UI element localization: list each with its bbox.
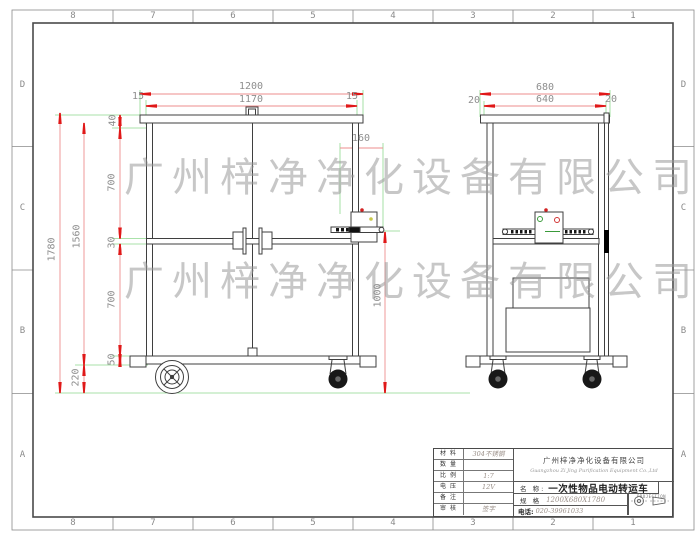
dim-front-total-width: 1200 <box>231 81 271 92</box>
grid-col-bot-2: 2 <box>541 517 565 530</box>
scale-value: 1:7 <box>464 471 513 481</box>
grid-row-left-b: B <box>12 324 33 338</box>
title-block: 材 料 304不锈钢 数 量 比 例 1:7 电 压 12V 备 注 审 核 签 <box>433 448 673 517</box>
product-name-value: 一次性物品电动转运车 <box>548 481 648 495</box>
grid-row-right-c: C <box>673 201 694 215</box>
dim-front-inner-width: 1170 <box>231 94 271 105</box>
company-name-en: Guangzhou Zi Jing Purification Equipment… <box>514 468 674 474</box>
grid-row-right-d: D <box>673 78 694 92</box>
grid-col-bot-6: 6 <box>221 517 245 530</box>
phone-row: 电话: 020-39961033 <box>514 506 628 515</box>
spec-label: 规 格 <box>520 495 541 505</box>
scale-label: 比 例 <box>434 471 464 481</box>
projection-cell: PROJECTION <box>628 494 674 515</box>
grid-col-bot-5: 5 <box>301 517 325 530</box>
company-block: 广州梓净净化设备有限公司 Guangzhou Zi Jing Purificat… <box>514 449 674 482</box>
dim-side-margin-left: 20 <box>462 95 486 106</box>
front-control-box <box>331 208 384 242</box>
grid-col-top-2: 2 <box>541 10 565 23</box>
watermark-line-1: 广州梓净净化设备有限公司 <box>124 156 644 200</box>
voltage-value: 12V <box>464 482 513 492</box>
quantity-label: 数 量 <box>434 460 464 470</box>
grid-col-top-7: 7 <box>141 10 165 23</box>
front-wheel-icon <box>156 361 189 394</box>
product-name-row: 名 称: 一次性物品电动转运车 <box>514 482 659 494</box>
grid-col-bot-3: 3 <box>461 517 485 530</box>
dim-box-offset: 160 <box>341 133 381 144</box>
grid-col-bot-1: 1 <box>621 517 645 530</box>
grid-row-right-b: B <box>673 324 694 338</box>
material-value: 304不锈钢 <box>464 449 513 459</box>
spec-row: 规 格 1200X680X1780 <box>514 494 628 506</box>
side-lower-box <box>506 308 590 352</box>
dim-side-total-width: 680 <box>525 82 565 93</box>
table-row: 比 例 1:7 <box>434 471 513 482</box>
dim-seg-upper: 700 <box>107 165 118 201</box>
dim-front-margin-right: 15 <box>340 91 364 102</box>
dim-wheel-height: 220 <box>71 360 82 396</box>
watermark-line-2: 广州梓净净化设备有限公司 <box>124 260 644 304</box>
phone-label: 电话: <box>518 506 534 516</box>
remark-value <box>464 493 513 503</box>
front-view <box>130 107 384 394</box>
grid-col-top-1: 1 <box>621 10 645 23</box>
grid-col-top-5: 5 <box>301 10 325 23</box>
grid-row-left-c: C <box>12 201 33 215</box>
grid-row-left-a: A <box>12 448 33 462</box>
remark-label: 备 注 <box>434 493 464 503</box>
dim-side-inner-width: 640 <box>525 94 565 105</box>
grid-col-top-4: 4 <box>381 10 405 23</box>
table-row: 电 压 12V <box>434 482 513 493</box>
side-control-box <box>535 208 563 243</box>
grid-col-bot-4: 4 <box>381 517 405 530</box>
table-row: 材 料 304不锈钢 <box>434 449 513 460</box>
check-value: 签字 <box>464 504 513 515</box>
grid-col-top-3: 3 <box>461 10 485 23</box>
spec-value: 1200X680X1780 <box>546 496 605 504</box>
dim-seg-lower: 700 <box>107 282 118 318</box>
table-row: 审 核 签字 <box>434 504 513 515</box>
drawing-sheet: 广州梓净净化设备有限公司 广州梓净净化设备有限公司 8 7 6 5 4 3 2 … <box>0 0 700 544</box>
phone-value: 020-39961033 <box>536 507 584 515</box>
dim-seg-rail: 30 <box>107 225 118 261</box>
title-block-right: 广州梓净净化设备有限公司 Guangzhou Zi Jing Purificat… <box>514 449 674 516</box>
grid-col-top-6: 6 <box>221 10 245 23</box>
table-row: 备 注 <box>434 493 513 504</box>
side-hinge-bar <box>604 230 609 253</box>
grid-col-top-8: 8 <box>61 10 85 23</box>
dim-seg-top: 40 <box>108 103 119 139</box>
projection-symbol-icon <box>629 494 673 508</box>
dim-side-margin-right: 20 <box>599 94 623 105</box>
grid-col-bot-7: 7 <box>141 517 165 530</box>
product-name-label: 名 称: <box>520 483 545 493</box>
check-label: 审 核 <box>434 504 464 515</box>
dim-height-body: 1560 <box>72 219 83 255</box>
voltage-label: 电 压 <box>434 482 464 492</box>
table-row: 数 量 <box>434 460 513 471</box>
grid-row-right-a: A <box>673 448 694 462</box>
dim-box-ground-height: 1000 <box>373 278 384 314</box>
grid-col-bot-8: 8 <box>61 517 85 530</box>
title-block-left-table: 材 料 304不锈钢 数 量 比 例 1:7 电 压 12V 备 注 审 核 签 <box>434 449 514 516</box>
quantity-value <box>464 460 513 470</box>
dim-height-total: 1780 <box>47 232 58 268</box>
company-name-cn: 广州梓净净化设备有限公司 <box>514 455 674 466</box>
material-label: 材 料 <box>434 449 464 459</box>
dim-seg-bottom: 50 <box>107 342 118 378</box>
dim-front-margin-left: 15 <box>126 91 150 102</box>
grid-row-left-d: D <box>12 78 33 92</box>
